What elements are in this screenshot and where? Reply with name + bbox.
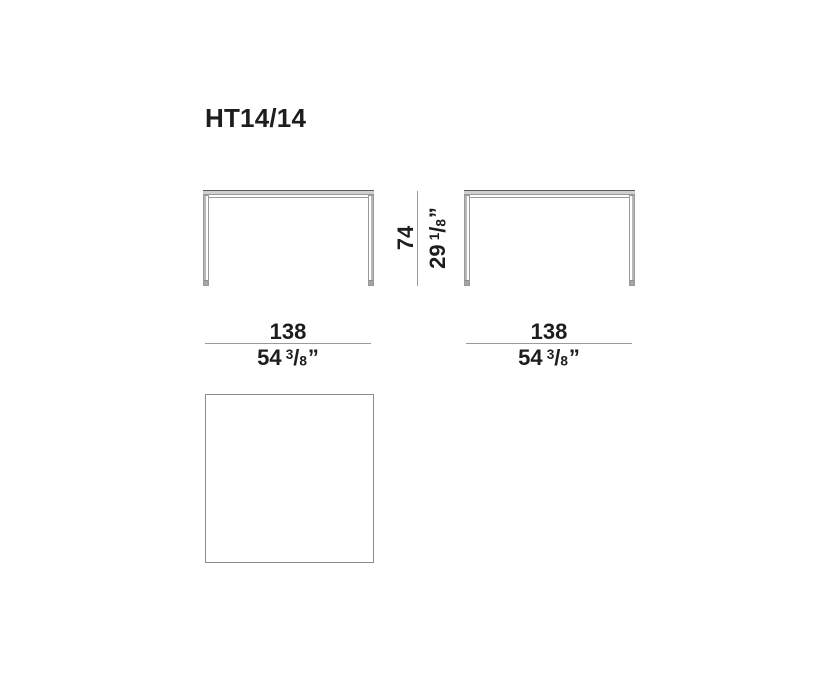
- product-code-title: HT14/14: [205, 103, 306, 134]
- imperial-whole: 54: [257, 345, 281, 370]
- width-front-metric-label: 138: [270, 321, 307, 343]
- imperial-whole: 54: [518, 345, 542, 370]
- width-front-metric-value: 138: [270, 319, 307, 344]
- leg-foot: [204, 280, 208, 285]
- inch-mark: ”: [569, 345, 580, 370]
- imperial-whole: 29: [425, 244, 450, 268]
- technical-drawing-canvas: HT14/14 74 291/8” 138: [0, 0, 840, 679]
- leg-foot: [369, 280, 373, 285]
- tabletop-edge-side: [464, 190, 635, 195]
- fraction-numerator: 3: [286, 347, 294, 362]
- fraction-denominator: 8: [434, 219, 449, 227]
- height-metric-value: 74: [393, 226, 418, 250]
- table-leg-side-left: [464, 195, 470, 286]
- width-side-metric-value: 138: [531, 319, 568, 344]
- fraction-numerator: 1: [427, 233, 442, 241]
- inch-mark: ”: [308, 345, 319, 370]
- table-leg-front-left: [203, 195, 209, 286]
- height-imperial-label: 291/8”: [427, 207, 449, 269]
- apron-line-front: [209, 197, 368, 198]
- width-side-dimension-line: [466, 343, 632, 344]
- fraction-denominator: 8: [299, 354, 307, 369]
- table-leg-side-right: [629, 195, 635, 286]
- height-metric-label: 74: [395, 226, 417, 250]
- table-leg-front-right: [368, 195, 374, 286]
- inch-mark: ”: [425, 207, 450, 218]
- width-front-imperial-label: 543/8”: [257, 347, 319, 369]
- width-side-imperial-label: 543/8”: [518, 347, 580, 369]
- leg-foot: [630, 280, 634, 285]
- width-side-metric-label: 138: [531, 321, 568, 343]
- width-front-dimension-line: [205, 343, 371, 344]
- apron-line-side: [470, 197, 629, 198]
- tabletop-edge-front: [203, 190, 374, 195]
- fraction-denominator: 8: [560, 354, 568, 369]
- leg-foot: [465, 280, 469, 285]
- fraction-slash: /: [425, 227, 450, 233]
- top-view-square: [205, 394, 374, 563]
- fraction-numerator: 3: [547, 347, 555, 362]
